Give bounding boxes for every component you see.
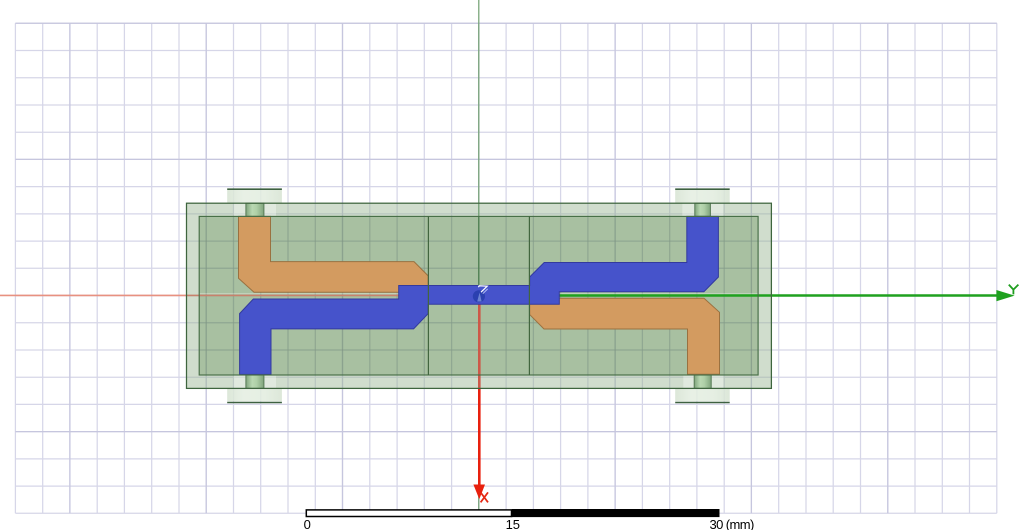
svg-text:15: 15 bbox=[506, 517, 520, 530]
svg-text:0: 0 bbox=[304, 517, 311, 530]
svg-text:30 (mm): 30 (mm) bbox=[710, 517, 754, 530]
